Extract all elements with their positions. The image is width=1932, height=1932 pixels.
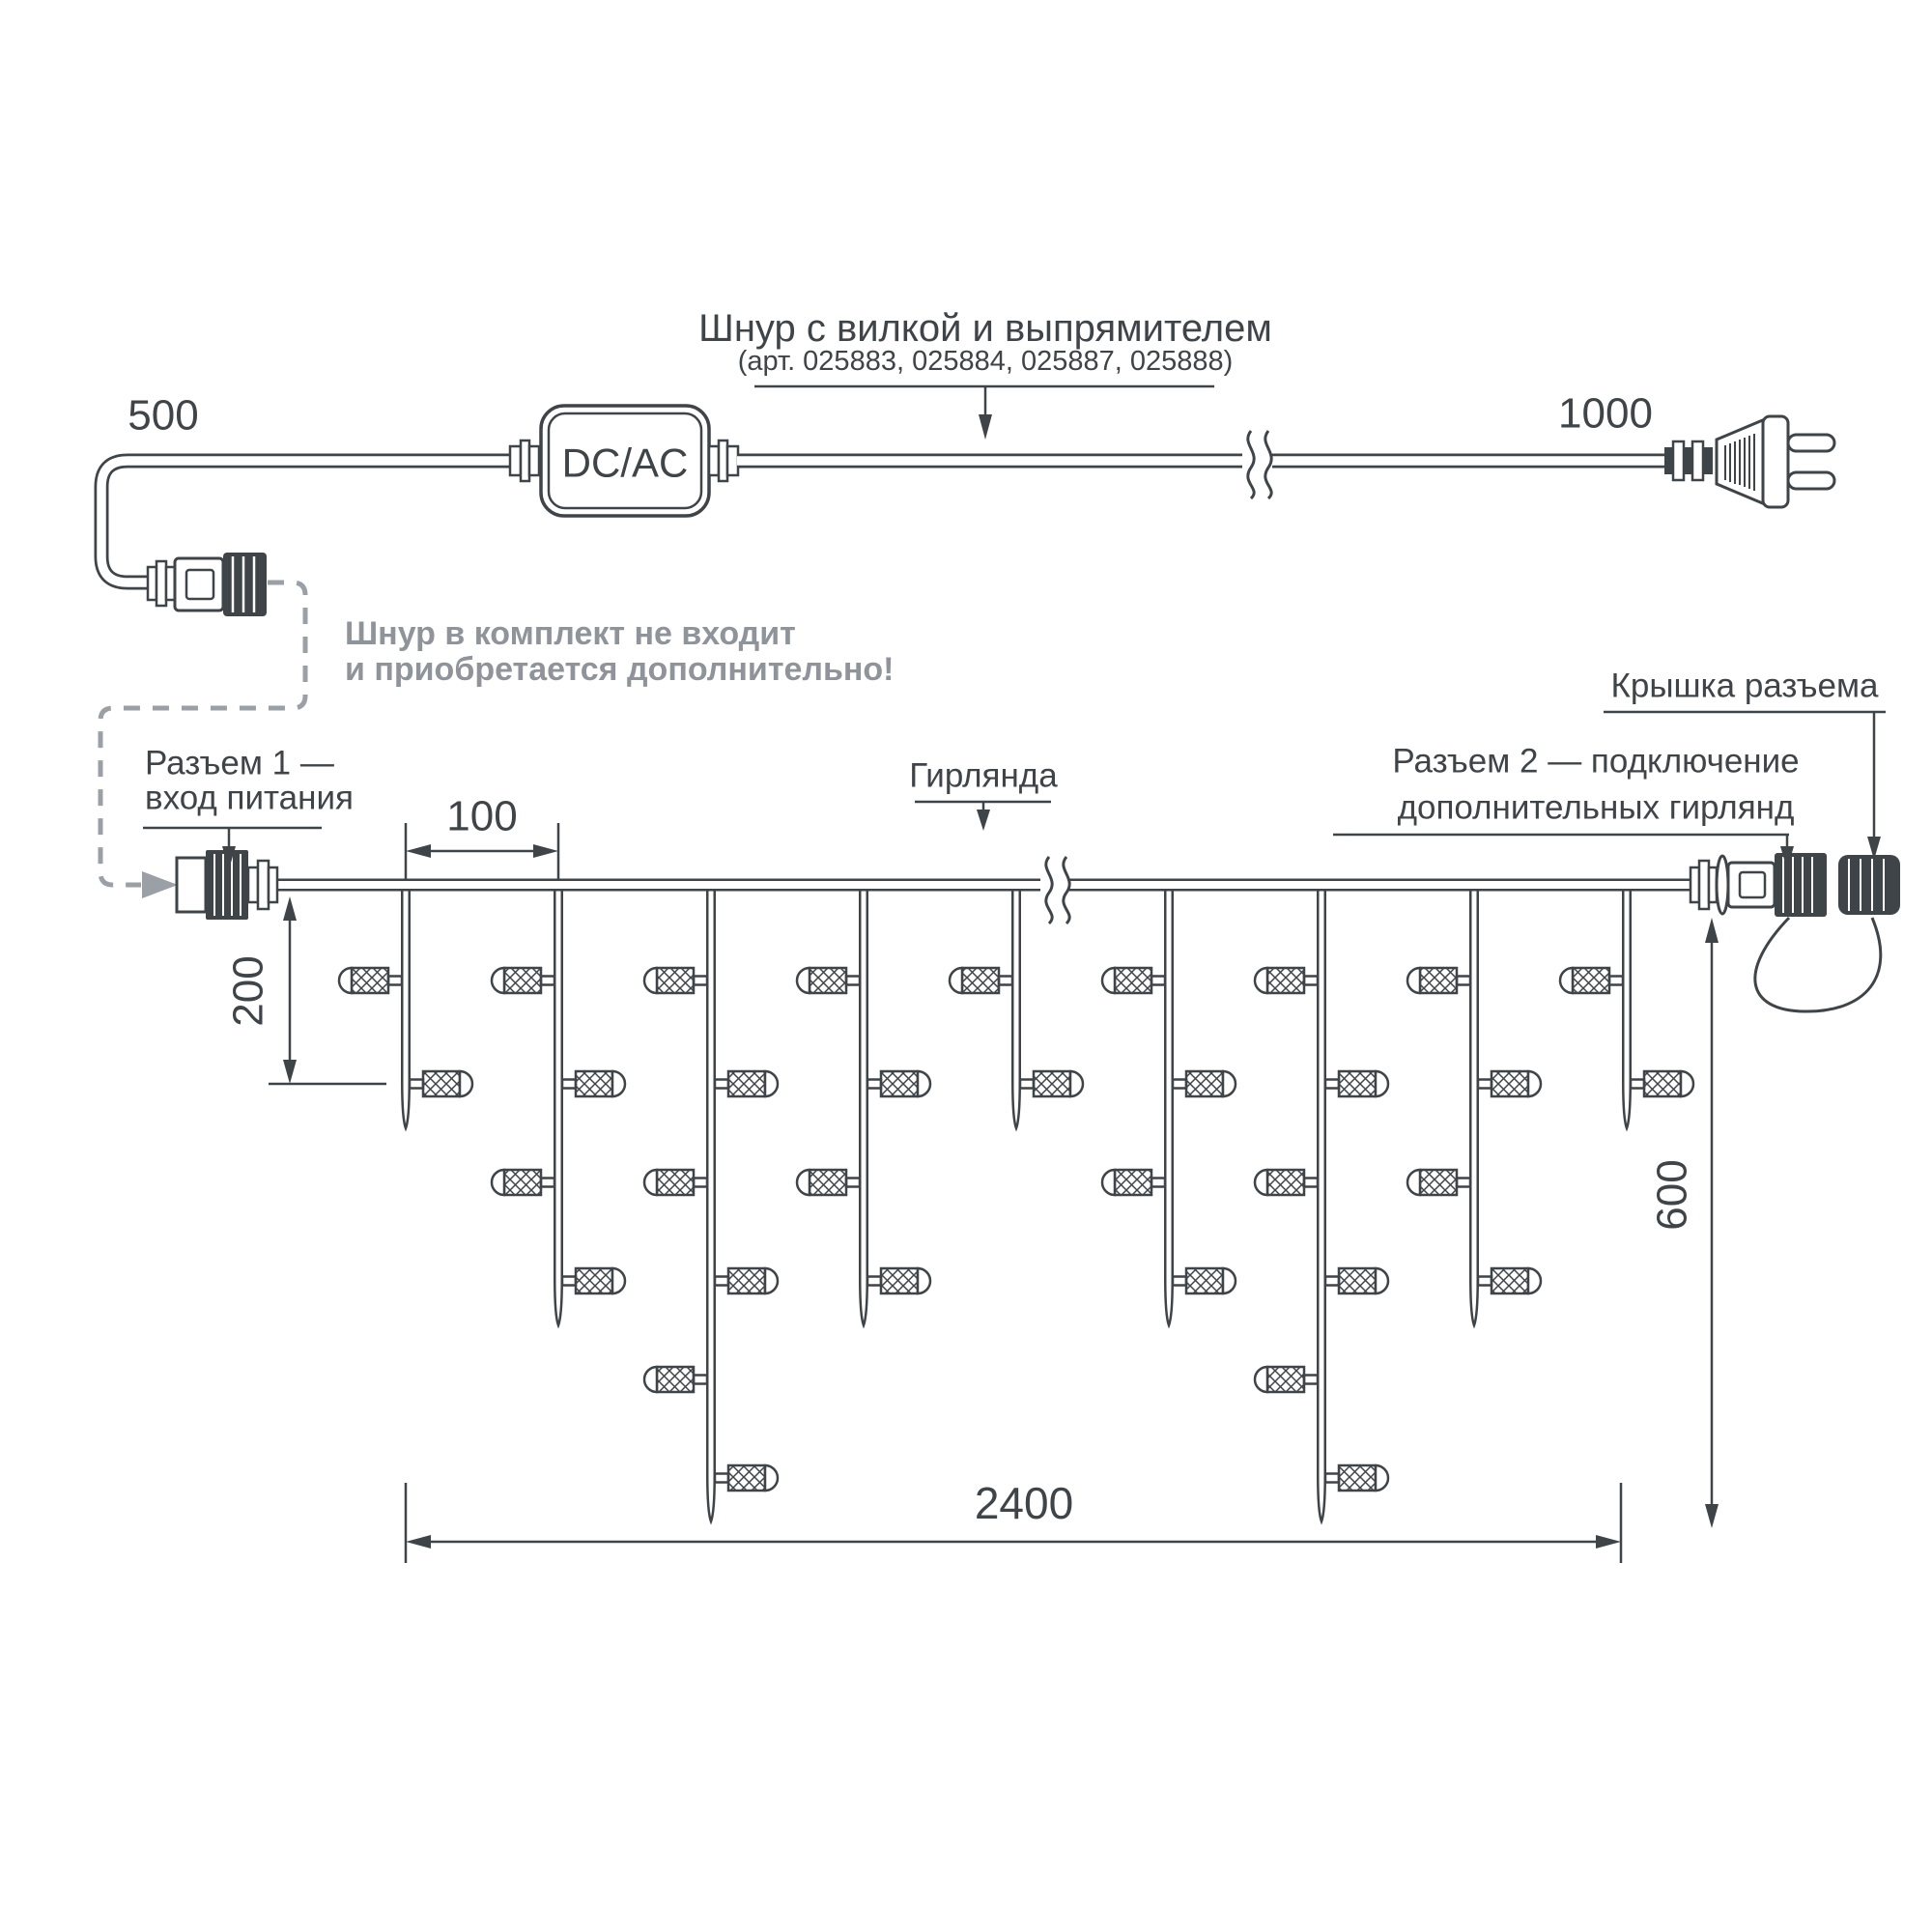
cord-title: Шнур с вилкой и выпрямителем xyxy=(698,307,1272,350)
dcac-label: DC/AC xyxy=(562,440,689,486)
strain-relief-right xyxy=(709,440,738,481)
connector1-callout: Разъем 1 — вход питания xyxy=(143,745,354,870)
plug-strain-relief xyxy=(1664,441,1713,480)
garland-connector-2 xyxy=(1690,853,1900,1011)
drop-tip xyxy=(707,1475,715,1521)
dim-100-label: 100 xyxy=(446,793,517,840)
led-bulb xyxy=(644,968,707,993)
led-bulb xyxy=(1478,1268,1541,1293)
cord-connector xyxy=(148,553,267,616)
led-bulb xyxy=(1407,968,1470,993)
led-bulb xyxy=(797,968,860,993)
garland-wiring-diagram: Шнур с вилкой и выпрямителем (арт. 02588… xyxy=(0,0,1932,1932)
dim-2400: 2400 xyxy=(406,1478,1621,1563)
led-bulb xyxy=(797,1170,860,1195)
icicle-drops xyxy=(339,881,1693,1521)
led-bulb xyxy=(867,1071,930,1096)
cord-title-block: Шнур с вилкой и выпрямителем (арт. 02588… xyxy=(698,307,1272,440)
led-bulb xyxy=(1102,1170,1165,1195)
drop-tip xyxy=(1012,1082,1020,1128)
dashed-connection-path xyxy=(100,582,305,898)
dim-200-label: 200 xyxy=(225,955,272,1026)
led-bulb xyxy=(410,1071,472,1096)
led-bulb xyxy=(1020,1071,1083,1096)
led-bulb xyxy=(1560,968,1623,993)
cord-subtitle: (арт. 025883, 025884, 025887, 025888) xyxy=(738,346,1234,377)
icicle-drop xyxy=(644,881,778,1521)
led-bulb xyxy=(1478,1071,1541,1096)
power-cord-right xyxy=(737,431,1664,498)
drop-tip xyxy=(554,1279,562,1325)
led-bulb xyxy=(644,1170,707,1195)
led-bulb xyxy=(644,1367,707,1392)
garland-label: Гирлянда xyxy=(909,757,1058,795)
euro-plug xyxy=(1664,416,1834,507)
led-bulb xyxy=(492,968,554,993)
led-bulb xyxy=(715,1268,778,1293)
led-bulb xyxy=(1325,1268,1388,1293)
dim-600: 600 xyxy=(1649,918,1719,1528)
not-included-note: Шнур в комплект не входит и приобретаетс… xyxy=(345,615,895,688)
led-bulb xyxy=(1102,968,1165,993)
led-bulb xyxy=(1173,1071,1236,1096)
dim-600-label: 600 xyxy=(1649,1159,1696,1230)
title-arrow-icon xyxy=(979,414,992,440)
diagram-page: Шнур с вилкой и выпрямителем (арт. 02588… xyxy=(0,0,1932,1932)
note-line2: и приобретается дополнительно! xyxy=(345,651,895,688)
led-bulb xyxy=(1255,1367,1318,1392)
drop-tip xyxy=(402,1082,410,1128)
icicle-drop xyxy=(797,881,930,1325)
strain-relief-left xyxy=(510,440,539,481)
led-bulb xyxy=(1631,1071,1693,1096)
drop-tip xyxy=(1470,1279,1478,1325)
drop-tip xyxy=(860,1279,867,1325)
gray-arrow-icon xyxy=(142,871,178,898)
led-bulb xyxy=(1255,968,1318,993)
led-bulb xyxy=(562,1071,625,1096)
icicle-drop xyxy=(1407,881,1541,1325)
drop-tip xyxy=(1165,1279,1173,1325)
led-bulb xyxy=(1255,1170,1318,1195)
icicle-drop xyxy=(1560,881,1693,1128)
led-bulb xyxy=(867,1268,930,1293)
drop-tip xyxy=(1318,1475,1325,1521)
plug-prong-top xyxy=(1788,435,1834,451)
icicle-drop xyxy=(950,881,1083,1128)
icicle-drop xyxy=(1102,881,1236,1325)
dim-100: 100 xyxy=(406,793,558,880)
note-line1: Шнур в комплект не входит xyxy=(345,615,796,652)
connector1-label-line2: вход питания xyxy=(145,780,354,817)
dcac-converter-box: DC/AC xyxy=(510,406,738,516)
led-bulb xyxy=(339,968,402,993)
cap-label: Крышка разъема xyxy=(1610,668,1879,705)
drop-tip xyxy=(1623,1082,1631,1128)
led-bulb xyxy=(950,968,1012,993)
garland-callout: Гирлянда xyxy=(909,757,1058,832)
connector2-callout: Разъем 2 — подключение дополнительных ги… xyxy=(1333,743,1800,870)
dim-2400-label: 2400 xyxy=(975,1478,1073,1528)
led-bulb xyxy=(1407,1170,1470,1195)
led-bulb xyxy=(715,1071,778,1096)
led-bulb xyxy=(1325,1465,1388,1491)
dim-1000-label: 1000 xyxy=(1558,390,1653,438)
plug-prong-bottom xyxy=(1788,472,1834,489)
garland-arrow-icon xyxy=(977,810,990,831)
icicle-drop xyxy=(1255,881,1388,1521)
dim-500-label: 500 xyxy=(128,392,198,440)
seal-ring-icon xyxy=(1717,856,1728,914)
connector-cap xyxy=(1838,855,1900,915)
icicle-drop xyxy=(339,881,472,1128)
connector2-label-line1: Разъем 2 — подключение xyxy=(1392,743,1799,781)
connector2-label-line2: дополнительных гирлянд xyxy=(1398,789,1795,827)
connector1-label-line1: Разъем 1 — xyxy=(145,745,334,782)
led-bulb xyxy=(715,1465,778,1491)
icicle-drop xyxy=(492,881,625,1325)
led-bulb xyxy=(562,1268,625,1293)
led-bulb xyxy=(1173,1268,1236,1293)
cap-tether-wire xyxy=(1755,918,1881,1011)
led-bulb xyxy=(1325,1071,1388,1096)
cord-connector-cap xyxy=(223,553,267,616)
led-bulb xyxy=(492,1170,554,1195)
